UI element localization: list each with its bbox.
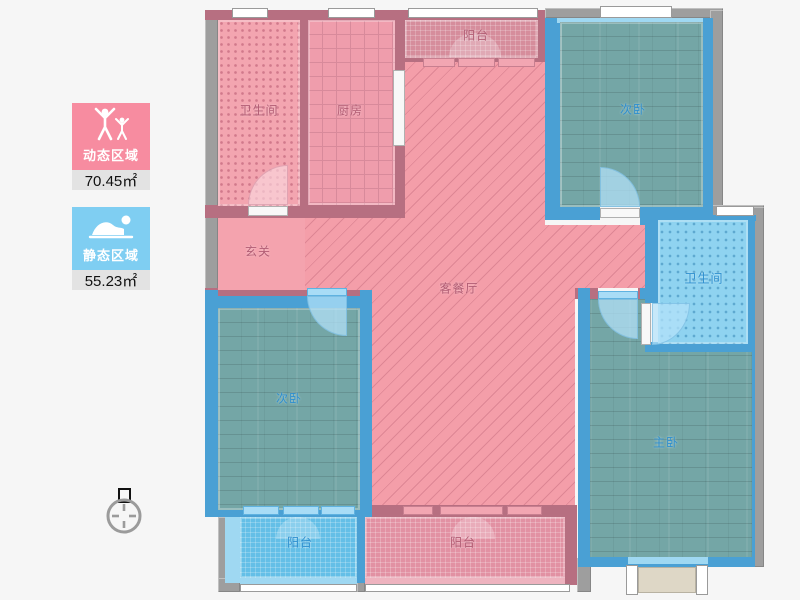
legend-static-area: 55.23㎡ <box>72 270 150 290</box>
wall-segment <box>703 18 713 220</box>
bay-window-frame <box>626 565 638 595</box>
wall-segment <box>640 207 713 220</box>
legend-static-label: 静态区域 <box>83 245 139 264</box>
wall-segment <box>545 18 560 220</box>
window <box>328 8 375 18</box>
room-label-kitchen: 厨房 <box>337 102 363 119</box>
window <box>408 8 538 18</box>
room-label-bedroom-top-right: 次卧 <box>620 101 646 118</box>
room-label-master-bedroom: 主卧 <box>653 434 679 451</box>
window <box>232 8 268 18</box>
sliding-door-panel <box>403 506 433 515</box>
door-panel <box>600 208 640 218</box>
sliding-door-panel <box>321 506 355 515</box>
wall-segment <box>225 517 240 583</box>
window <box>600 6 672 18</box>
wall-segment <box>545 207 600 220</box>
wall-segment <box>360 290 372 517</box>
wall-segment <box>578 288 590 567</box>
room-bedroom-left <box>218 308 360 510</box>
window <box>240 584 357 592</box>
wall-segment <box>565 505 577 585</box>
bay-window-frame <box>696 565 708 595</box>
room-label-balcony-top: 阳台 <box>463 27 489 44</box>
wall-segment <box>205 205 405 218</box>
room-label-balcony-bottom-center: 阳台 <box>450 534 476 551</box>
legend-dynamic-area: 70.45㎡ <box>72 170 150 190</box>
sliding-door-panel <box>243 506 279 515</box>
legend-dynamic-label: 动态区域 <box>83 145 139 164</box>
sliding-door-panel <box>423 58 455 67</box>
room-label-bathroom-top: 卫生间 <box>239 102 278 119</box>
sliding-door-panel <box>507 506 542 515</box>
people-arms-raised-icon <box>72 103 150 145</box>
door-panel <box>307 288 347 296</box>
door-panel <box>641 303 651 345</box>
wall-segment <box>357 505 365 583</box>
sliding-door-panel <box>440 506 503 515</box>
room-label-bedroom-left: 次卧 <box>276 390 302 407</box>
room-label-living-dining: 客餐厅 <box>439 280 478 297</box>
sliding-door <box>393 70 405 146</box>
window-sill <box>628 557 708 564</box>
window <box>716 206 754 216</box>
sliding-door-panel <box>498 58 535 67</box>
legend-static-card: 静态区域 <box>72 207 150 270</box>
legend-dynamic-card: 动态区域 <box>72 103 150 170</box>
person-sleeping-icon <box>72 207 150 245</box>
door-panel <box>598 291 638 299</box>
wall-segment <box>205 290 218 517</box>
window <box>365 584 570 592</box>
floorplan-viewer: 动态区域 70.45㎡ 静态区域 55.23㎡ <box>0 0 800 600</box>
north-indicator <box>100 482 152 543</box>
room-label-entry-hall: 玄关 <box>245 243 271 260</box>
room-label-bathroom-right: 卫生间 <box>684 270 723 287</box>
room-label-balcony-bottom-left: 阳台 <box>287 534 313 551</box>
wall-segment <box>300 20 308 212</box>
sliding-door-panel <box>283 506 319 515</box>
sliding-door-panel <box>458 58 495 67</box>
bay-window <box>638 567 696 593</box>
door-panel <box>248 206 288 216</box>
